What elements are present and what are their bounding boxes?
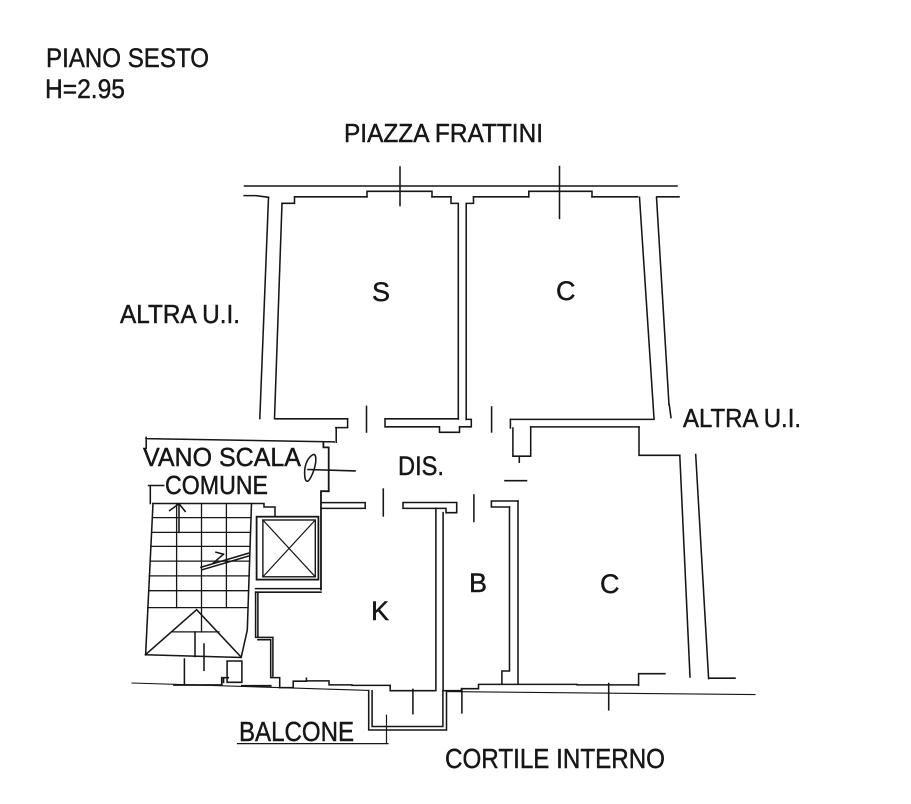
svg-text:COMUNE: COMUNE xyxy=(165,470,268,500)
svg-text:K: K xyxy=(371,596,389,626)
svg-text:BALCONE: BALCONE xyxy=(239,716,354,747)
svg-text:DIS.: DIS. xyxy=(398,451,444,481)
svg-text:B: B xyxy=(469,568,487,598)
svg-text:C: C xyxy=(600,569,620,599)
svg-text:H=2.95: H=2.95 xyxy=(45,74,125,104)
svg-text:S: S xyxy=(372,277,390,307)
svg-text:ALTRA U.I.: ALTRA U.I. xyxy=(120,299,240,329)
svg-text:C: C xyxy=(556,276,576,306)
svg-text:PIANO SESTO: PIANO SESTO xyxy=(46,43,209,73)
svg-text:ALTRA U.I.: ALTRA U.I. xyxy=(683,403,801,433)
svg-text:VANO SCALA: VANO SCALA xyxy=(143,442,302,472)
svg-text:CORTILE INTERNO: CORTILE INTERNO xyxy=(445,743,665,774)
svg-text:PIAZZA FRATTINI: PIAZZA FRATTINI xyxy=(344,118,543,148)
